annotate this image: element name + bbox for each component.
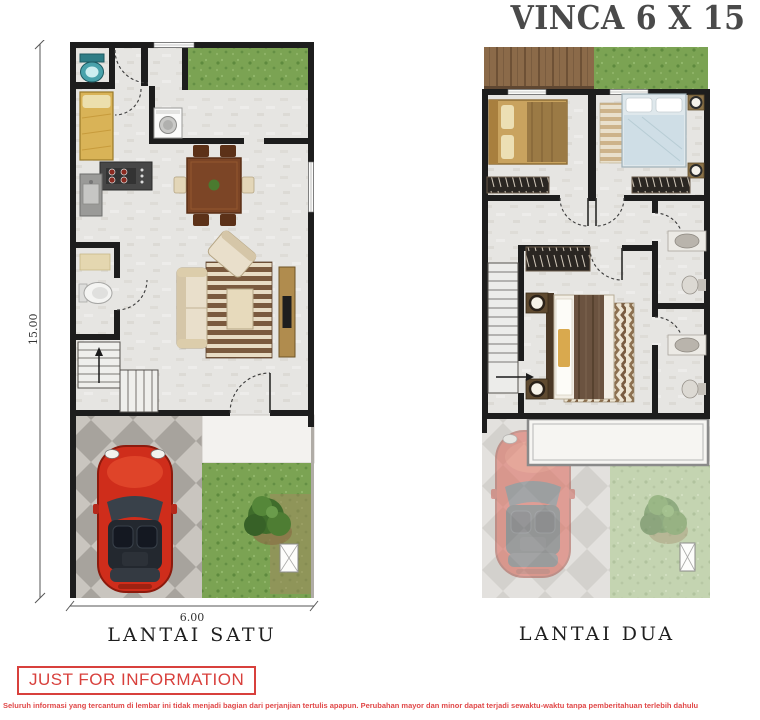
blue-bed-icon [600,94,686,167]
single-bed-icon [80,92,113,160]
dimension-width-label: 6.00 [180,611,205,624]
gate-icon [280,544,298,572]
roof-garden [594,47,708,89]
master-bed-icon [546,293,614,399]
wardrobe-icon [632,177,690,193]
carport-canopy [528,419,708,465]
wood-deck [484,47,594,89]
toilet-icon [79,283,112,304]
disclaimer-text: Seluruh informasi yang tercantum di lemb… [3,701,758,710]
page-title: VINCA 6 X 15 [498,0,758,38]
washing-machine-icon [154,108,182,138]
carport-edge [311,427,314,598]
wardrobe-icon [487,177,549,193]
dimension-width [66,601,318,611]
dimension-height-label: 15.00 [27,314,40,346]
sink-icon [675,234,699,248]
toilet-icon [80,54,104,82]
coffee-table-icon [227,289,253,329]
bedside-rug [600,103,622,163]
sofa-icon [177,268,207,348]
first-floor-label: LANTAI SATU [70,624,314,646]
floor-plan-second-floor [480,43,712,603]
wood-bed-icon [489,100,567,164]
kitchen-sink-icon [80,174,102,216]
plan-interior-second [482,47,710,598]
front-walkway [202,415,314,463]
car-icon [93,446,177,592]
brochure-page: VINCA 6 X 15 15.00 6.00 [0,0,760,720]
info-stamp: JUST FOR INFORMATION [17,666,256,695]
deck-edge [484,86,594,89]
gate-icon [680,543,695,571]
second-floor-label: LANTAI DUA [482,623,712,645]
plan-interior-first [70,42,314,598]
sink-icon [675,338,699,352]
tv-console-icon [279,267,295,357]
bath-mat [80,254,110,270]
floor-plan-first-floor: 15.00 6.00 [26,40,322,624]
back-garden [182,46,310,90]
wardrobe-icon [526,247,590,271]
